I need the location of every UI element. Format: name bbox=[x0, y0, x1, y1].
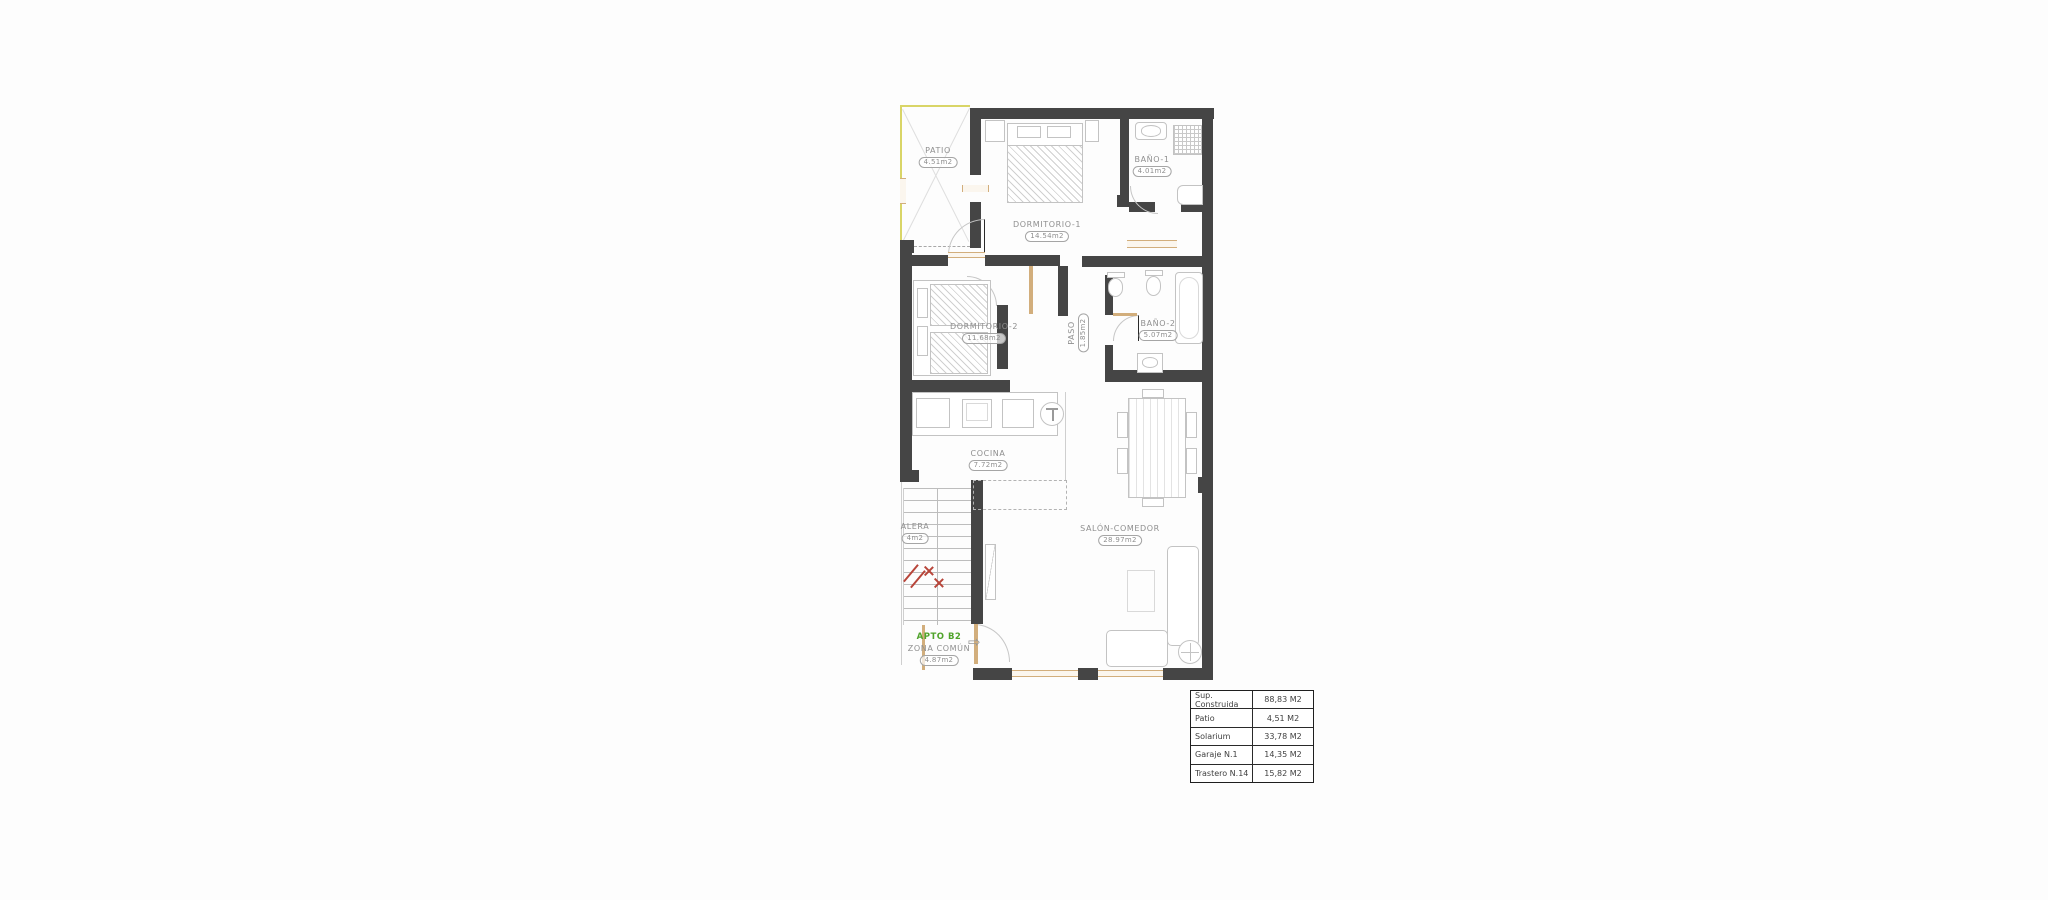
wall-segment bbox=[1058, 266, 1068, 316]
pillow bbox=[1047, 126, 1071, 138]
room-label-escalera: ALERA 4m2 bbox=[901, 522, 930, 544]
window bbox=[1012, 670, 1078, 677]
chair bbox=[1117, 448, 1128, 474]
toilet bbox=[1108, 278, 1123, 297]
wall-segment bbox=[903, 255, 948, 266]
kitchen-sink-basin bbox=[966, 403, 988, 421]
wall-segment bbox=[985, 255, 1060, 266]
chair bbox=[1186, 448, 1197, 474]
table-value: 88,83 M2 bbox=[1253, 691, 1313, 708]
room-name: COCINA bbox=[971, 449, 1006, 458]
door-leaf bbox=[1113, 313, 1137, 316]
wall-segment bbox=[1163, 668, 1204, 680]
room-label-patio: PATIO 4.51m2 bbox=[919, 146, 958, 168]
room-label-bano-1: BAÑO-1 4.01m2 bbox=[1133, 155, 1172, 177]
table-row: Trastero N.14 15,82 M2 bbox=[1191, 765, 1313, 782]
sofa bbox=[1106, 630, 1168, 667]
table-value: 33,78 M2 bbox=[1253, 728, 1313, 745]
common-zone-boundary bbox=[901, 482, 902, 665]
bathtub-inner bbox=[1179, 277, 1199, 339]
toilet bbox=[1177, 185, 1203, 205]
shower bbox=[1173, 125, 1202, 155]
table-row: Garaje N.1 14,35 M2 bbox=[1191, 746, 1313, 764]
table-row: Sup. Construida 88,83 M2 bbox=[1191, 691, 1313, 709]
stair-cross-mark bbox=[933, 577, 945, 589]
washbasin-bowl bbox=[1142, 357, 1158, 368]
room-label-cocina: COCINA 7.72m2 bbox=[969, 449, 1008, 471]
chair bbox=[1142, 498, 1164, 507]
wall-segment bbox=[1078, 668, 1098, 680]
floor-plan: PATIO 4.51m2 DORMITORIO-1 14.54m2 BAÑO-1… bbox=[890, 100, 1230, 695]
table-label: Sup. Construida bbox=[1191, 691, 1253, 708]
wall-segment bbox=[1120, 119, 1129, 207]
patio-boundary-top bbox=[900, 105, 970, 107]
kitchen-open-boundary bbox=[1065, 392, 1066, 480]
door-swing bbox=[1113, 315, 1139, 341]
staircase bbox=[903, 488, 971, 625]
wall-pillar bbox=[1198, 477, 1207, 493]
room-area: 28.97m2 bbox=[1098, 535, 1141, 546]
table-value: 14,35 M2 bbox=[1253, 746, 1313, 763]
table-row: Patio 4,51 M2 bbox=[1191, 709, 1313, 727]
sofa bbox=[1167, 546, 1199, 646]
table-label: Solarium bbox=[1191, 728, 1253, 745]
wall-segment bbox=[970, 119, 981, 175]
chair bbox=[1117, 412, 1128, 438]
page-canvas: PATIO 4.51m2 DORMITORIO-1 14.54m2 BAÑO-1… bbox=[0, 0, 2048, 900]
table-label: Trastero N.14 bbox=[1191, 765, 1253, 782]
door-swing bbox=[948, 219, 985, 255]
wall-segment bbox=[900, 470, 919, 482]
wall-segment bbox=[900, 250, 912, 482]
room-area: 5.07m2 bbox=[1139, 330, 1178, 341]
door-threshold bbox=[948, 252, 985, 258]
wall-segment bbox=[1105, 345, 1113, 371]
table-row: Solarium 33,78 M2 bbox=[1191, 728, 1313, 746]
common-zone-area: 4.87m2 bbox=[920, 655, 959, 666]
room-area: 4.51m2 bbox=[919, 157, 958, 168]
entry-hall-boundary bbox=[973, 480, 1067, 510]
wall-segment bbox=[973, 668, 1012, 680]
room-area: 7.72m2 bbox=[969, 460, 1008, 471]
room-area: 1.85m2 bbox=[1078, 314, 1089, 353]
door-leaf bbox=[1029, 266, 1033, 314]
wall-segment bbox=[903, 380, 1010, 392]
table-value: 4,51 M2 bbox=[1253, 709, 1313, 726]
pillow bbox=[1017, 126, 1041, 138]
room-label-bano-2: BAÑO-2 5.07m2 bbox=[1139, 319, 1178, 341]
room-name: ALERA bbox=[901, 522, 930, 531]
room-label-salon-comedor: SALÓN-COMEDOR 28.97m2 bbox=[1080, 524, 1160, 546]
apartment-entry-label: APTO B2 ZONA COMÚN 4.87m2 bbox=[908, 632, 970, 666]
patio-boundary-left bbox=[900, 105, 902, 241]
room-area: 14.54m2 bbox=[1025, 231, 1068, 242]
tv-unit bbox=[985, 544, 996, 600]
wall-segment bbox=[1117, 195, 1129, 207]
cooktop bbox=[916, 398, 950, 428]
pillow bbox=[917, 326, 928, 356]
common-zone-name: ZONA COMÚN bbox=[908, 644, 970, 653]
pillow bbox=[917, 288, 928, 318]
closet bbox=[1127, 240, 1177, 248]
room-area: 4m2 bbox=[902, 533, 929, 544]
table-label: Patio bbox=[1191, 709, 1253, 726]
wall-segment bbox=[1202, 108, 1213, 680]
area-summary-table: Sup. Construida 88,83 M2 Patio 4,51 M2 S… bbox=[1190, 690, 1314, 783]
window bbox=[1098, 670, 1163, 677]
entry-arrow-icon bbox=[968, 632, 988, 650]
bed-blanket bbox=[930, 284, 988, 326]
room-name: DORMITORIO-1 bbox=[1013, 220, 1081, 229]
room-name: PATIO bbox=[925, 146, 951, 155]
wall-segment bbox=[1082, 256, 1202, 267]
oven bbox=[1002, 399, 1034, 428]
room-name: DORMITORIO-2 bbox=[950, 322, 1018, 331]
window bbox=[962, 185, 989, 192]
room-name: BAÑO-2 bbox=[1140, 319, 1175, 328]
chair bbox=[1186, 412, 1197, 438]
nightstand bbox=[1085, 120, 1099, 142]
patio-diagonal bbox=[903, 108, 970, 241]
rug bbox=[1127, 570, 1155, 612]
nightstand bbox=[985, 120, 1005, 142]
room-name: SALÓN-COMEDOR bbox=[1080, 524, 1160, 533]
room-name: PASO bbox=[1067, 321, 1076, 345]
wall-segment bbox=[970, 108, 1214, 119]
sink-basin bbox=[1141, 125, 1161, 137]
room-name: BAÑO-1 bbox=[1134, 155, 1169, 164]
table-value: 15,82 M2 bbox=[1253, 765, 1313, 782]
bidet bbox=[1146, 276, 1161, 296]
table-label: Garaje N.1 bbox=[1191, 746, 1253, 763]
room-area: 4.01m2 bbox=[1133, 166, 1172, 177]
water-heater bbox=[1040, 402, 1064, 426]
apartment-name: APTO B2 bbox=[917, 632, 962, 642]
side-table bbox=[1178, 640, 1202, 664]
room-label-paso: PASO 1.85m2 bbox=[1067, 314, 1089, 353]
room-label-dormitorio-2: DORMITORIO-2 11.68m2 bbox=[950, 322, 1018, 344]
bed-blanket bbox=[1007, 145, 1083, 203]
room-area: 11.68m2 bbox=[962, 333, 1005, 344]
room-label-dormitorio-1: DORMITORIO-1 14.54m2 bbox=[1013, 220, 1081, 242]
patio-window bbox=[900, 178, 906, 204]
dining-table bbox=[1128, 398, 1186, 498]
chair bbox=[1142, 389, 1164, 398]
stair-cross-mark bbox=[923, 565, 935, 577]
